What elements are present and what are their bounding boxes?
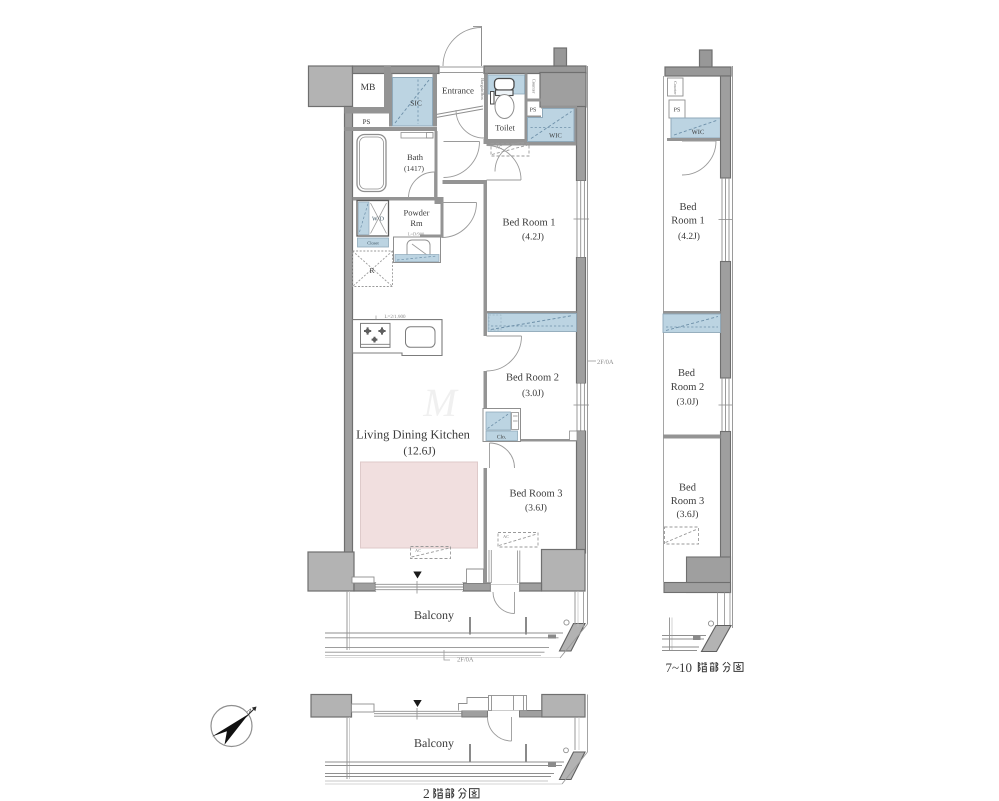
svg-text:M: M [422,380,459,425]
svg-text:Bed Room 3: Bed Room 3 [509,489,562,500]
svg-text:Clo.: Clo. [497,435,507,441]
svg-text:AC: AC [503,534,509,539]
svg-text:Room 3: Room 3 [671,496,705,507]
svg-text:Bed: Bed [678,368,696,379]
svg-text:Bed: Bed [679,483,697,494]
svg-text:WIC: WIC [549,133,562,140]
svg-text:(12.6J): (12.6J) [403,446,435,458]
svg-text:Bed Room 2: Bed Room 2 [506,373,559,384]
svg-text:Bed Room 1: Bed Room 1 [502,218,555,229]
svg-text:BargainBox: BargainBox [480,78,485,100]
svg-text:Room 2: Room 2 [671,382,705,393]
svg-text:Powder: Powder [404,208,430,218]
svg-text:(3.0J): (3.0J) [677,398,699,408]
svg-text:2F/0A: 2F/0A [597,359,614,366]
svg-text:2: 2 [423,786,430,801]
svg-text:WIC: WIC [692,129,705,136]
svg-text:Balcony: Balcony [414,608,454,622]
svg-text:Counter: Counter [673,81,678,95]
svg-text:(4.2J): (4.2J) [522,233,544,243]
svg-text:Living Dining Kitchen: Living Dining Kitchen [356,428,471,442]
svg-text:(3.6J): (3.6J) [677,510,699,520]
svg-text:SIC: SIC [410,99,422,108]
svg-text:MB: MB [361,83,376,93]
svg-text:AC: AC [415,548,421,553]
svg-text:Closet: Closet [367,241,379,246]
svg-text:Room 1: Room 1 [671,216,705,227]
svg-text:Counter: Counter [532,79,537,94]
svg-text:(3.0J): (3.0J) [522,389,544,399]
svg-text:Balcony: Balcony [414,736,454,750]
svg-text:PS: PS [674,108,681,114]
svg-text:PS: PS [363,118,371,126]
svg-text:R: R [369,266,374,275]
svg-text:Rm: Rm [410,218,423,228]
svg-text:(1417): (1417) [404,164,424,173]
svg-text:L=2/1.900: L=2/1.900 [384,314,406,320]
svg-text:PS: PS [530,108,537,114]
svg-text:2F/0A: 2F/0A [457,657,474,664]
svg-text:7~10: 7~10 [666,660,693,675]
svg-text:W·D: W·D [372,217,385,223]
svg-text:(4.2J): (4.2J) [678,232,700,242]
svg-text:Toilet: Toilet [495,123,515,133]
svg-text:Bed: Bed [680,202,698,213]
svg-text:Entrance: Entrance [442,86,474,96]
svg-text:Bath: Bath [407,152,424,162]
svg-text:(3.6J): (3.6J) [525,504,547,514]
svg-text:L=D/900: L=D/900 [408,232,425,237]
